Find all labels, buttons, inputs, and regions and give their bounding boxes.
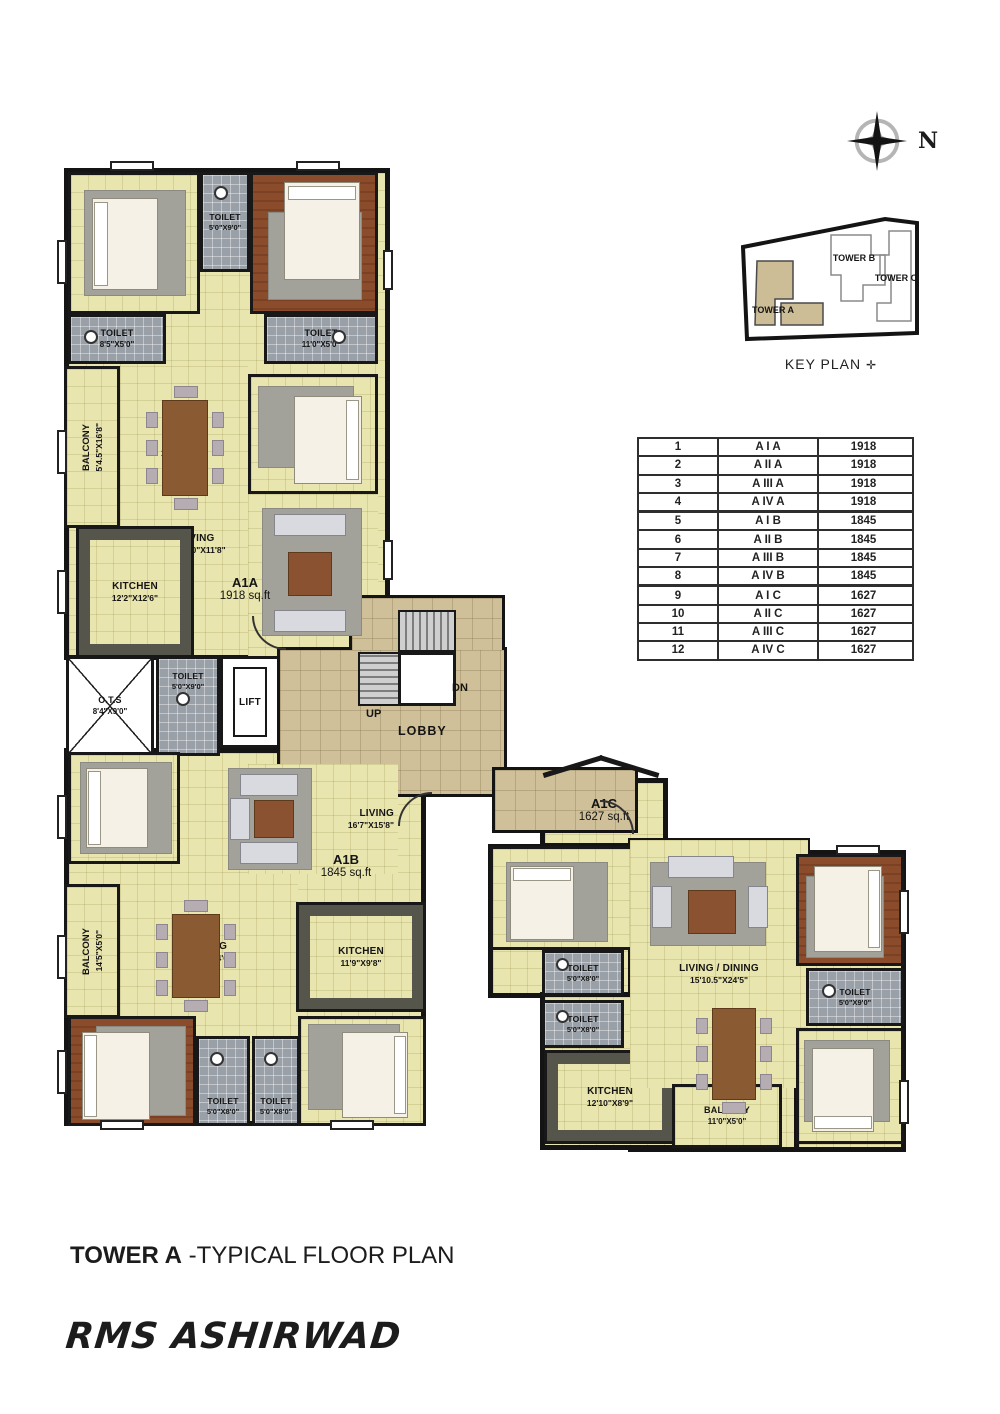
toilet-icon (264, 1052, 278, 1066)
window-icon (57, 570, 67, 614)
toilet-icon (214, 186, 228, 200)
chair-icon (212, 440, 224, 456)
key-plan-caption: KEY PLAN ✛ (733, 356, 929, 372)
a1c-toilet1-room: TOILET5'0"X8'0" (542, 950, 624, 996)
sofa-icon (240, 842, 298, 864)
toilet-icon (332, 330, 346, 344)
stairs-up-label: UP (366, 708, 381, 720)
table-row: 1A I A1918 (639, 439, 912, 457)
chair-icon (760, 1018, 772, 1034)
keyplan-tower-b-label: TOWER B (833, 253, 876, 263)
core-toilet-room: TOILET5'0"X9'0" (156, 656, 220, 756)
stairs-left-flight (358, 652, 400, 706)
toilet-icon (210, 1052, 224, 1066)
a1b-toilet1-room: TOILET5'0"X8'0" (196, 1036, 250, 1126)
chair-icon (224, 952, 236, 968)
table-row: 12A IV C1627 (639, 642, 912, 658)
title-rest: -TYPICAL FLOOR PLAN (182, 1242, 455, 1269)
chair-icon (212, 468, 224, 484)
table-row: 11A III C1627 (639, 624, 912, 642)
key-plan-map: TOWER A TOWER B TOWER C (733, 213, 929, 347)
unit-area-table: 1A I A1918 2A II A1918 3A III A1918 4A I… (637, 437, 914, 661)
a1a-kitchen-room: KITCHEN12'2"X12'6" (76, 526, 194, 658)
a1b-balcony-room: BALCONY14'5"X5'0" (64, 884, 120, 1018)
chair-icon (696, 1018, 708, 1034)
toilet-icon (556, 1010, 569, 1023)
pillow-icon (394, 1036, 406, 1114)
window-icon (57, 1050, 67, 1094)
kitchen-counter-icon (299, 905, 423, 1009)
chair-icon (146, 412, 158, 428)
a1a-balcony-room: BALCONY5'4.5"X16'8" (64, 366, 120, 528)
chair-icon (184, 1000, 208, 1012)
compass-rose-icon (846, 110, 908, 172)
chair-icon (760, 1074, 772, 1090)
window-icon (383, 540, 393, 580)
a1c-toilet2-room: TOILET5'0"X8'0" (542, 1000, 624, 1048)
chair-icon (224, 980, 236, 996)
keyplan-tower-c-label: TOWER C (875, 273, 918, 283)
chair-icon (696, 1074, 708, 1090)
chair-icon (146, 440, 158, 456)
title-tower: TOWER A (70, 1242, 182, 1269)
chair-icon (174, 498, 198, 510)
pillow-icon (868, 870, 880, 948)
sofa-icon (652, 886, 672, 928)
chair-icon (156, 952, 168, 968)
window-icon (57, 935, 67, 979)
chair-icon (212, 412, 224, 428)
window-icon (899, 890, 909, 934)
core-ots-room: O.T.S8'4"X9'0" (66, 656, 154, 756)
table-row: 9A I C1627 (639, 587, 912, 605)
chair-icon (156, 980, 168, 996)
brand-logo: RMS ASHIRWAD (64, 1316, 404, 1357)
dining-table-icon (172, 914, 220, 998)
coffee-table-icon (688, 890, 736, 934)
table-row: 8A IV B1845 (639, 568, 912, 587)
pillow-icon (814, 1116, 872, 1129)
table-row: 7A III B1845 (639, 550, 912, 568)
lobby-label: LOBBY (398, 724, 447, 738)
north-label: N (918, 128, 938, 154)
chair-icon (760, 1046, 772, 1062)
chair-icon (174, 386, 198, 398)
dining-table-icon (712, 1008, 756, 1100)
sofa-icon (230, 798, 250, 840)
keyplan-compass-icon: ✛ (866, 358, 877, 372)
table-row: 2A II A1918 (639, 457, 912, 475)
window-icon (836, 845, 880, 855)
page-title: TOWER A -TYPICAL FLOOR PLAN (70, 1242, 455, 1270)
keyplan-tower-a-label: TOWER A (752, 305, 794, 315)
toilet-icon (84, 330, 98, 344)
window-icon (899, 1080, 909, 1124)
chair-icon (184, 900, 208, 912)
chair-icon (146, 468, 158, 484)
table-row: 5A I B1845 (639, 513, 912, 531)
chair-icon (156, 924, 168, 940)
toilet-icon (822, 984, 836, 998)
table-row: 4A IV A1918 (639, 494, 912, 513)
table-row: 6A II B1845 (639, 531, 912, 549)
kitchen-counter-icon (79, 529, 191, 655)
window-icon (110, 161, 154, 171)
window-icon (100, 1120, 144, 1130)
a1a-toilet-right-room: TOILET11'0"X5'0" (264, 314, 378, 364)
core-lift: LIFT (220, 656, 280, 748)
a1a-toilet-left-room: TOILET8'5"X5'0" (68, 314, 166, 364)
dining-table-icon (162, 400, 208, 496)
north-compass: N (846, 110, 938, 172)
window-icon (383, 250, 393, 290)
pillow-icon (346, 400, 359, 480)
pillow-icon (94, 202, 108, 286)
window-icon (330, 1120, 374, 1130)
toilet-icon (176, 692, 190, 706)
sofa-icon (668, 856, 734, 878)
table-row: 10A II C1627 (639, 606, 912, 624)
stairs-upper-flight (398, 610, 456, 652)
a1b-kitchen-room: KITCHEN11'9"X9'8" (296, 902, 426, 1012)
pillow-icon (84, 1035, 97, 1117)
key-plan: TOWER A TOWER B TOWER C KEY PLAN ✛ (733, 213, 929, 372)
stairs-dn-label: DN (452, 682, 468, 694)
pillow-icon (288, 186, 356, 200)
a1c-toilet3-room: TOILET5'0"X9'0" (806, 968, 904, 1026)
table-row: 3A III A1918 (639, 476, 912, 494)
chair-icon (224, 924, 236, 940)
coffee-table-icon (254, 800, 294, 838)
unit-a1a-label: A1A1918 sq.ft (193, 575, 297, 602)
chair-icon (696, 1046, 708, 1062)
window-icon (57, 240, 67, 284)
sofa-icon (240, 774, 298, 796)
pillow-icon (513, 868, 571, 881)
window-icon (296, 161, 340, 171)
sofa-icon (748, 886, 768, 928)
stairs-void (398, 652, 456, 706)
chair-icon (722, 1102, 746, 1114)
floor-plan-sheet: N TOWER A TOWER B TOWER C KEY PLAN ✛ 1A … (0, 0, 1000, 1414)
window-icon (57, 430, 67, 474)
pillow-icon (88, 771, 101, 845)
sofa-icon (274, 514, 346, 536)
a1b-toilet2-room: TOILET5'0"X8'0" (252, 1036, 300, 1126)
window-icon (57, 795, 67, 839)
toilet-icon (556, 958, 569, 971)
lift-car-icon (233, 667, 267, 737)
unit-a1b-label: A1B1845 sq.ft (300, 852, 392, 879)
